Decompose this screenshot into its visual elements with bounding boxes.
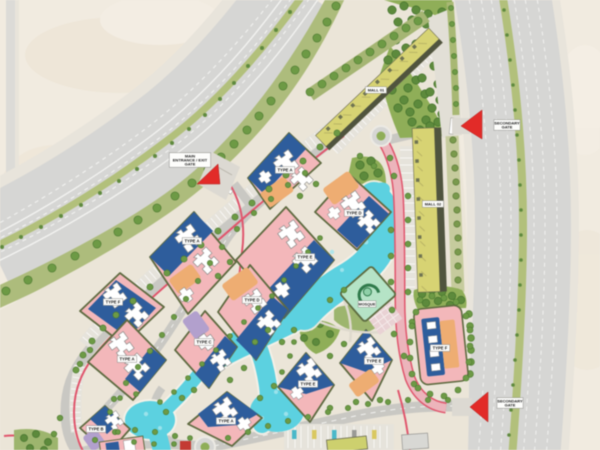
svg-text:GATE: GATE — [185, 162, 196, 167]
svg-text:MOSQUE: MOSQUE — [359, 303, 376, 307]
svg-text:TYPE A: TYPE A — [219, 419, 234, 424]
svg-text:GATE: GATE — [502, 125, 513, 130]
svg-text:TYPE D: TYPE D — [346, 211, 361, 216]
svg-text:TYPE B: TYPE B — [88, 427, 103, 432]
svg-text:TYPE F: TYPE F — [106, 300, 121, 305]
svg-text:TYPE E: TYPE E — [301, 382, 316, 387]
svg-text:TYPE E: TYPE E — [298, 255, 313, 260]
svg-text:GATE: GATE — [505, 403, 516, 408]
svg-text:TYPE C: TYPE C — [196, 340, 211, 345]
svg-text:MALL 02: MALL 02 — [425, 202, 442, 207]
svg-text:TYPE D: TYPE D — [244, 298, 259, 303]
svg-text:TYPE E: TYPE E — [367, 359, 382, 364]
svg-text:TYPE A: TYPE A — [185, 239, 200, 244]
svg-text:TYPE F: TYPE F — [433, 346, 448, 351]
svg-text:MALL 01: MALL 01 — [368, 88, 385, 93]
svg-text:TYPE A: TYPE A — [120, 357, 135, 362]
svg-text:TYPE A: TYPE A — [278, 168, 293, 173]
